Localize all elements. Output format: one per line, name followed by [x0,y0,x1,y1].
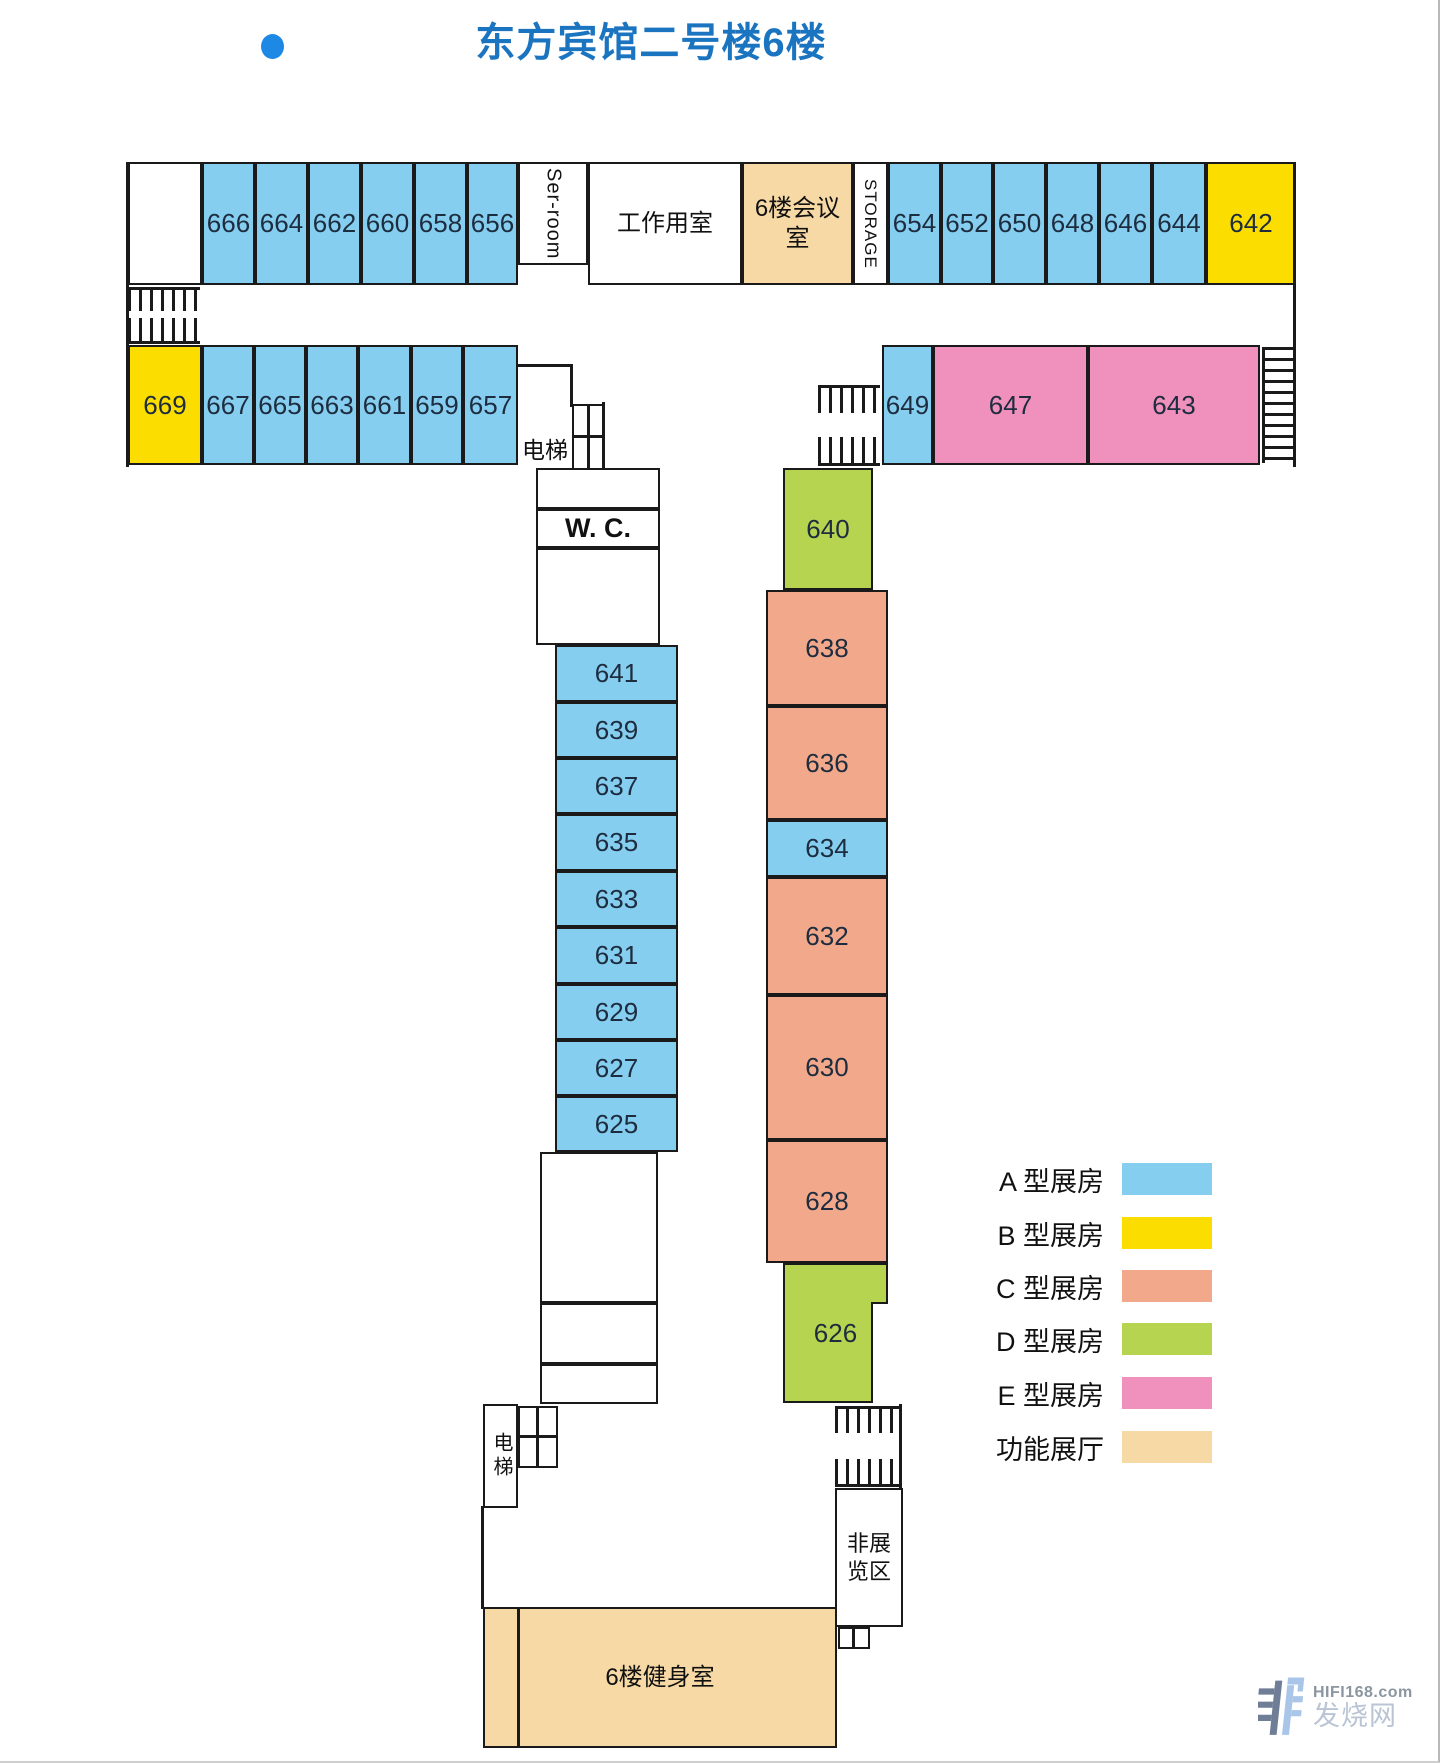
room-665: 665 [254,345,306,465]
legend-swatch-4 [1122,1323,1212,1355]
room-647: 647 [933,345,1088,465]
page-title: 东方宾馆二号楼6楼 [0,10,1302,68]
room-662: 662 [308,162,361,285]
room-664: 664 [255,162,308,285]
room-ser-room: Ser-room [518,162,588,265]
room-643: 643 [1088,345,1260,465]
legend-swatch-2 [1122,1217,1212,1249]
stairs-hatch-3 [818,385,880,413]
legend-label-1: A 型展房 [999,1160,1104,1199]
room-630: 630 [766,995,888,1140]
room-633: 633 [555,871,678,927]
room-669: 669 [128,345,202,465]
shaft-bottom-1 [518,1406,538,1437]
stairs-hatch-4 [818,437,880,466]
room-meeting-room: 6楼会议室 [742,162,853,285]
legend-swatch-6 [1122,1431,1212,1463]
legend-label-5: E 型展房 [997,1374,1104,1413]
label-elevator-top: 电梯 [512,432,578,464]
room-658: 658 [414,162,467,285]
legend-item-1: A 型展房 [880,1157,1212,1201]
room-635: 635 [555,814,678,871]
hifi168-logo [1258,1676,1306,1738]
room-corridor-1 [540,1152,658,1303]
legend-item-3: C 型展房 [880,1264,1212,1308]
wall-segment-4 [570,364,573,407]
room-650: 650 [993,162,1046,285]
room-638: 638 [766,590,888,706]
stairs-hatch-1 [128,287,200,311]
room-628: 628 [766,1140,888,1263]
room-top-blank [128,162,202,285]
legend-item-5: E 型展房 [880,1371,1212,1415]
legend-swatch-5 [1122,1377,1212,1409]
room-wc: W. C. [536,509,660,548]
room-elevator-bottom: 电梯 [483,1404,518,1508]
wall-segment-1 [126,162,129,467]
room-wc-upper [536,468,660,509]
legend-label-6: 功能展厅 [996,1428,1104,1467]
room-656: 656 [467,162,518,285]
room-wc-lower [536,548,660,645]
legend-label-4: D 型展房 [996,1320,1104,1359]
room-648: 648 [1046,162,1099,285]
watermark-name: 发烧网 [1313,1703,1413,1730]
legend-item-2: B 型展房 [880,1211,1212,1255]
room-corridor-2 [540,1303,658,1364]
room-646: 646 [1099,162,1152,285]
room-gym: 6楼健身室 [483,1607,837,1748]
stairs-hatch-2 [128,318,200,344]
legend-item-4: D 型展房 [880,1317,1212,1361]
room-659: 659 [411,345,463,465]
floor-plan-page: 东方宾馆二号楼6楼 666664662660658656Ser-room工作用室… [0,0,1440,1763]
room-640: 640 [783,468,873,590]
room-637: 637 [555,758,678,814]
shaft-bottom-4 [537,1436,558,1468]
room-652: 652 [941,162,993,285]
watermark-text: HIFI168.com 发烧网 [1313,1685,1413,1730]
room-666: 666 [202,162,255,285]
legend-label-3: C 型展房 [996,1267,1104,1306]
room-639: 639 [555,702,678,758]
watermark: HIFI168.com 发烧网 [1258,1676,1413,1738]
wall-segment-6 [481,1506,484,1609]
room-634: 634 [766,820,888,877]
room-667: 667 [202,345,254,465]
room-654: 654 [888,162,941,285]
room-non-exhibit: 非展览区 [835,1488,903,1627]
room-661: 661 [358,345,411,465]
room-work-room: 工作用室 [588,162,742,285]
legend-swatch-3 [1122,1270,1212,1302]
room-641: 641 [555,645,678,702]
room-642: 642 [1206,162,1296,285]
wall-segment-3 [518,364,573,367]
shaft-bottom-3 [518,1436,538,1468]
wall-segment-8 [517,1609,520,1746]
room-636: 636 [766,706,888,820]
room-631: 631 [555,927,678,984]
room-627: 627 [555,1040,678,1096]
watermark-site: HIFI168.com [1313,1685,1413,1701]
shaft-gym-2 [853,1627,870,1649]
room-629: 629 [555,984,678,1040]
room-644: 644 [1152,162,1206,285]
room-632: 632 [766,877,888,995]
wall-segment-5 [602,402,605,470]
legend-swatch-1 [1122,1163,1212,1195]
room-663: 663 [306,345,358,465]
room-657: 657 [463,345,518,465]
room-625: 625 [555,1096,678,1152]
room-storage: STORAGE [853,162,888,285]
legend-item-6: 功能展厅 [880,1425,1212,1469]
legend-label-2: B 型展房 [997,1214,1104,1253]
room-corridor-3 [540,1364,658,1404]
room-649: 649 [882,345,933,465]
stairs-hatch-5 [1262,347,1295,463]
shaft-bottom-2 [537,1406,558,1437]
shaft-gym-1 [838,1627,854,1649]
room-660: 660 [361,162,414,285]
